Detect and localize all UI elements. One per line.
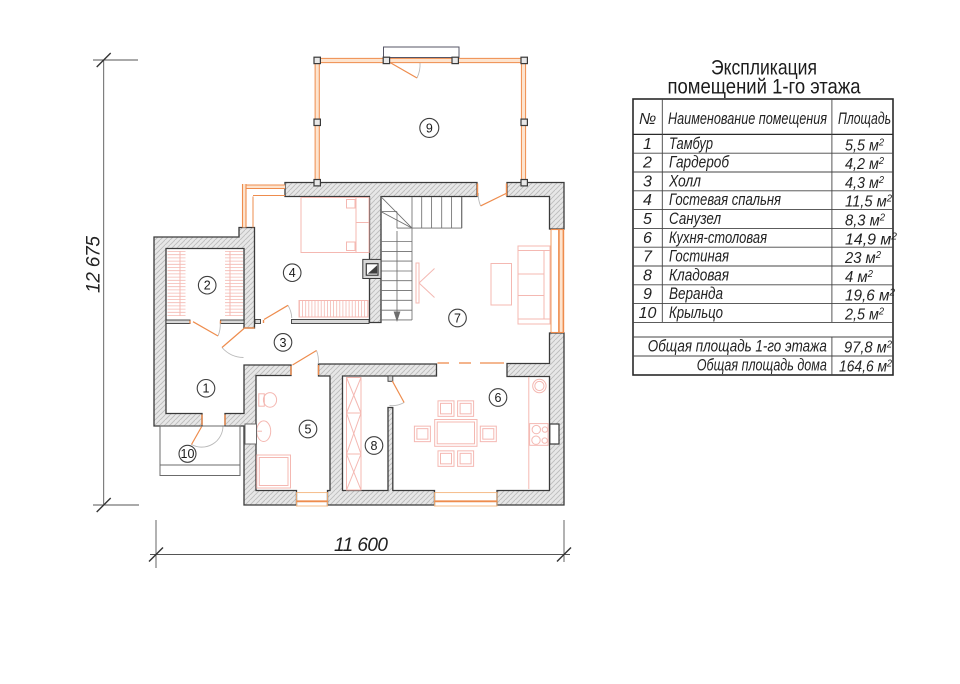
svg-text:10: 10: [639, 305, 657, 322]
svg-text:4: 4: [643, 192, 652, 209]
svg-text:14,9 м2: 14,9 м2: [845, 231, 897, 248]
svg-text:6: 6: [643, 230, 652, 247]
svg-text:11 600: 11 600: [334, 535, 388, 556]
svg-text:Гостиная: Гостиная: [669, 248, 729, 266]
svg-text:1: 1: [643, 136, 652, 153]
svg-text:Веранда: Веранда: [669, 285, 723, 303]
svg-text:6: 6: [495, 391, 502, 405]
svg-text:4: 4: [289, 266, 296, 280]
svg-text:8,3 м2: 8,3 м2: [845, 213, 885, 230]
svg-text:Наименование помещения: Наименование помещения: [668, 110, 827, 128]
svg-text:11,5 м2: 11,5 м2: [845, 194, 892, 211]
svg-text:7: 7: [643, 249, 653, 266]
svg-text:помещений 1-го этажа: помещений 1-го этажа: [668, 76, 861, 99]
svg-text:97,8 м2: 97,8 м2: [844, 340, 892, 357]
svg-text:Гостевая спальня: Гостевая спальня: [669, 191, 781, 209]
svg-text:2: 2: [204, 279, 211, 293]
svg-text:Крыльцо: Крыльцо: [669, 304, 723, 322]
svg-text:4,2 м2: 4,2 м2: [845, 156, 884, 173]
svg-text:19,6 м2: 19,6 м2: [845, 288, 895, 305]
svg-text:10: 10: [181, 447, 195, 461]
svg-text:2: 2: [642, 155, 652, 172]
svg-text:9: 9: [426, 121, 433, 135]
svg-text:3: 3: [280, 336, 287, 350]
svg-text:Кладовая: Кладовая: [669, 266, 729, 284]
svg-text:2,5 м2: 2,5 м2: [844, 307, 884, 324]
svg-text:12 675: 12 675: [84, 236, 105, 293]
svg-text:8: 8: [643, 267, 652, 284]
svg-text:5: 5: [643, 211, 652, 228]
svg-text:Общая площадь дома: Общая площадь дома: [697, 357, 827, 375]
svg-text:3: 3: [643, 173, 652, 190]
svg-text:8: 8: [371, 439, 378, 453]
svg-text:Санузел: Санузел: [669, 210, 721, 228]
svg-text:4,3 м2: 4,3 м2: [845, 175, 884, 192]
svg-text:9: 9: [643, 286, 652, 303]
svg-text:Тамбур: Тамбур: [669, 135, 713, 153]
svg-text:164,6 м2: 164,6 м2: [839, 359, 892, 376]
svg-text:Кухня-столовая: Кухня-столовая: [669, 229, 767, 247]
svg-text:Общая площадь 1-го этажа: Общая площадь 1-го этажа: [648, 338, 827, 356]
svg-text:Гардероб: Гардероб: [669, 154, 730, 172]
svg-text:Площадь: Площадь: [838, 110, 891, 128]
svg-text:5,5 м2: 5,5 м2: [845, 137, 884, 154]
svg-text:1: 1: [203, 382, 210, 396]
svg-text:№: №: [639, 111, 656, 128]
svg-text:7: 7: [454, 311, 461, 325]
svg-text:5: 5: [305, 422, 312, 436]
svg-text:Холл: Холл: [668, 172, 701, 190]
